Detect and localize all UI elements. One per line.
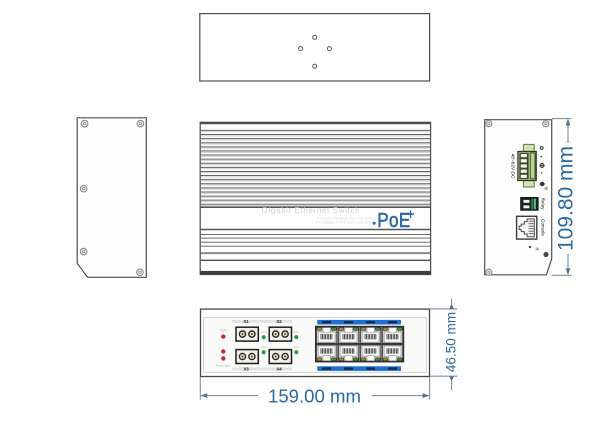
- svg-text:Console: Console: [540, 219, 545, 236]
- svg-text:Gigabit Ethernet Switch: Gigabit Ethernet Switch: [262, 206, 361, 215]
- svg-text:X2: X2: [276, 319, 282, 324]
- svg-text:+: +: [407, 205, 415, 221]
- svg-text:PWR: PWR: [220, 329, 228, 333]
- svg-text:4 1000Base-X SFP fiber ports s: 4 1000Base-X SFP fiber ports switch: [316, 221, 375, 225]
- svg-text:R: R: [535, 247, 540, 250]
- svg-text:FX4: FX4: [294, 345, 300, 349]
- svg-text:FX1: FX1: [261, 330, 267, 334]
- svg-text:X4: X4: [276, 367, 282, 372]
- svg-text:FX2: FX2: [294, 330, 300, 334]
- svg-text:Redundant: Redundant: [216, 364, 231, 368]
- svg-text:159.00 mm: 159.00 mm: [268, 385, 361, 406]
- svg-text:X3: X3: [243, 367, 249, 372]
- svg-text:Relay: Relay: [541, 198, 546, 210]
- svg-text:46.50 mm: 46.50 mm: [444, 312, 459, 372]
- svg-text:FX3: FX3: [261, 345, 267, 349]
- svg-text:X1: X1: [243, 319, 249, 324]
- svg-text:48~62V DC: 48~62V DC: [510, 154, 516, 179]
- svg-text:109.80 mm: 109.80 mm: [555, 146, 578, 251]
